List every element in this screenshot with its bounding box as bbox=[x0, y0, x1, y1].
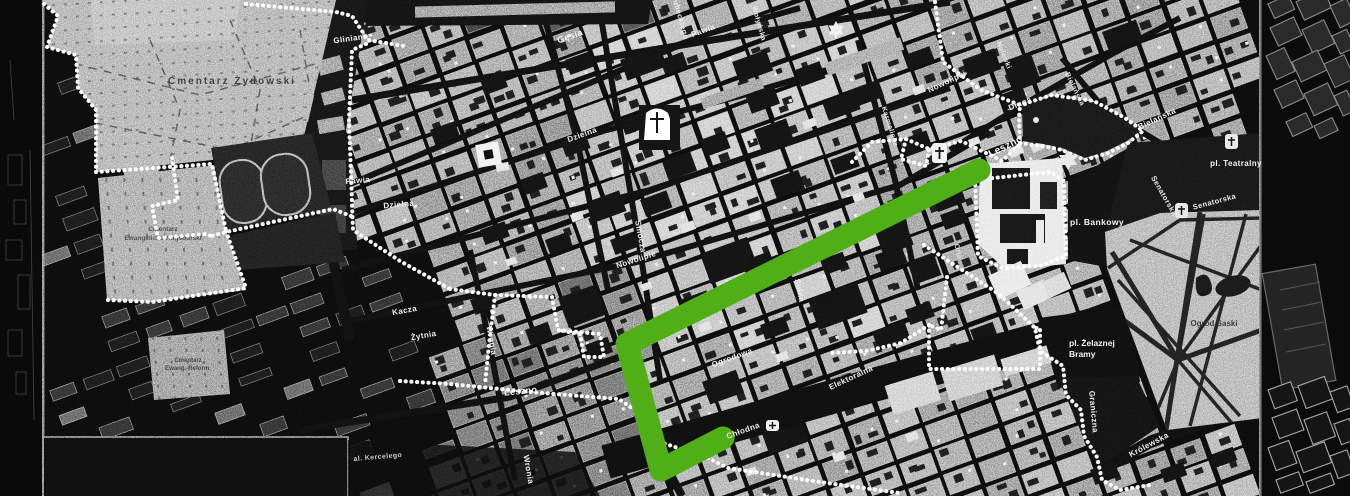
svg-text:pl. Teatralny: pl. Teatralny bbox=[1210, 159, 1262, 168]
svg-text:pl. Bankowy: pl. Bankowy bbox=[1070, 217, 1124, 227]
svg-text:pl. Żelaznej: pl. Żelaznej bbox=[1069, 338, 1115, 348]
svg-text:Bramy: Bramy bbox=[1069, 349, 1096, 359]
